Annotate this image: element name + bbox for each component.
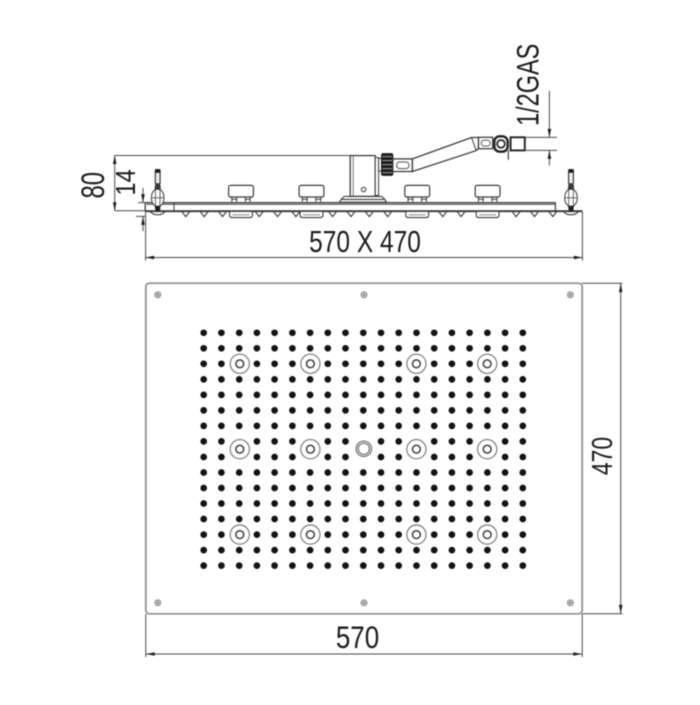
svg-text:1/2GAS: 1/2GAS: [510, 44, 545, 126]
svg-text:570 X 470: 570 X 470: [309, 224, 421, 258]
svg-text:14: 14: [111, 169, 141, 195]
svg-text:470: 470: [585, 437, 618, 475]
svg-text:570: 570: [336, 621, 379, 656]
svg-text:80: 80: [75, 172, 111, 199]
